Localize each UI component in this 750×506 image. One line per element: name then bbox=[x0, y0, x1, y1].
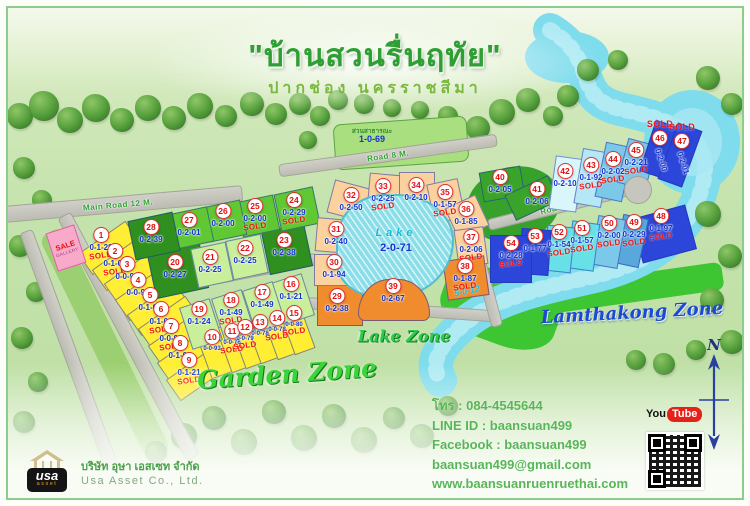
logo-sub-text: asset bbox=[27, 481, 67, 487]
tree-icon bbox=[110, 108, 134, 132]
tree-icon bbox=[202, 406, 226, 430]
tree-icon bbox=[162, 106, 186, 130]
tree-icon bbox=[215, 105, 237, 127]
tree-icon bbox=[231, 429, 257, 455]
company-name-english: Usa Asset Co., Ltd. bbox=[81, 475, 204, 487]
road-name-label: Main Road 12 M. bbox=[83, 196, 154, 211]
contact-email: baansuan499@gmail.com bbox=[432, 455, 628, 475]
plot-24 bbox=[273, 186, 320, 231]
tree-icon bbox=[28, 372, 48, 392]
tree-icon bbox=[13, 411, 35, 433]
tree-icon bbox=[262, 400, 286, 424]
site-map: Main Road 12 M.Road 8 M.Road 8 M.Road 8 … bbox=[6, 6, 744, 500]
qr-finder-icon bbox=[684, 434, 702, 452]
lake-size: 2-0-71 bbox=[380, 242, 412, 254]
tree-icon bbox=[653, 353, 675, 375]
cul-de-sac bbox=[624, 176, 652, 204]
tree-icon bbox=[543, 106, 563, 126]
logo-pillars bbox=[34, 461, 60, 468]
plot-54 bbox=[490, 235, 532, 283]
zone-label-lake: Lake Zone bbox=[358, 327, 451, 346]
tree-icon bbox=[695, 201, 721, 227]
tree-icon bbox=[626, 350, 646, 370]
tree-icon bbox=[291, 425, 317, 451]
park-size: 1-0-69 bbox=[359, 134, 385, 144]
tree-icon bbox=[383, 99, 401, 117]
contact-line-id: LINE ID : baansuan499 bbox=[432, 416, 628, 436]
tree-icon bbox=[351, 427, 377, 453]
tree-icon bbox=[13, 157, 35, 179]
logo-house-icon bbox=[30, 450, 64, 461]
tree-icon bbox=[410, 424, 434, 448]
contact-phone: โทร : 084-4545644 bbox=[432, 396, 628, 416]
tree-icon bbox=[57, 107, 83, 133]
contact-website: www.baansuanruenruethai.com bbox=[432, 474, 628, 494]
tree-icon bbox=[718, 244, 742, 268]
company-block: usa asset บริษัท อุษา เอสเซท จำกัด Usa A… bbox=[24, 450, 204, 494]
qr-finder-icon bbox=[648, 470, 666, 488]
tree-icon bbox=[265, 103, 287, 125]
tree-icon bbox=[383, 407, 405, 429]
tree-icon bbox=[310, 106, 330, 126]
tree-icon bbox=[411, 101, 429, 119]
qr-finder-icon bbox=[648, 434, 666, 452]
tree-icon bbox=[299, 131, 317, 149]
qr-code bbox=[646, 432, 704, 490]
lake-name-label: Lake bbox=[375, 227, 416, 239]
youtube-tube: Tube bbox=[667, 407, 702, 422]
tree-icon bbox=[322, 404, 346, 428]
youtube-you: You bbox=[646, 408, 666, 420]
logo-box: usa asset bbox=[27, 468, 67, 492]
contact-block: โทร : 084-4545644 LINE ID : baansuan499 … bbox=[432, 396, 628, 494]
tree-icon bbox=[11, 327, 33, 349]
project-title: "บ้านสวนรื่นฤทัย" bbox=[8, 30, 742, 80]
company-name-thai: บริษัท อุษา เอสเซท จำกัด bbox=[81, 457, 204, 475]
flyer: Main Road 12 M.Road 8 M.Road 8 M.Road 8 … bbox=[0, 0, 750, 506]
usa-asset-logo: usa asset bbox=[24, 450, 72, 494]
project-location: ปากช่อง นครราชสีมา bbox=[8, 76, 742, 101]
company-names: บริษัท อุษา เอสเซท จำกัด Usa Asset Co., … bbox=[81, 457, 204, 487]
tree-icon bbox=[489, 99, 515, 125]
youtube-logo: YouTube bbox=[646, 408, 702, 420]
contact-facebook: Facebook : baansuan499 bbox=[432, 435, 628, 455]
compass-n-label: N bbox=[696, 336, 732, 354]
